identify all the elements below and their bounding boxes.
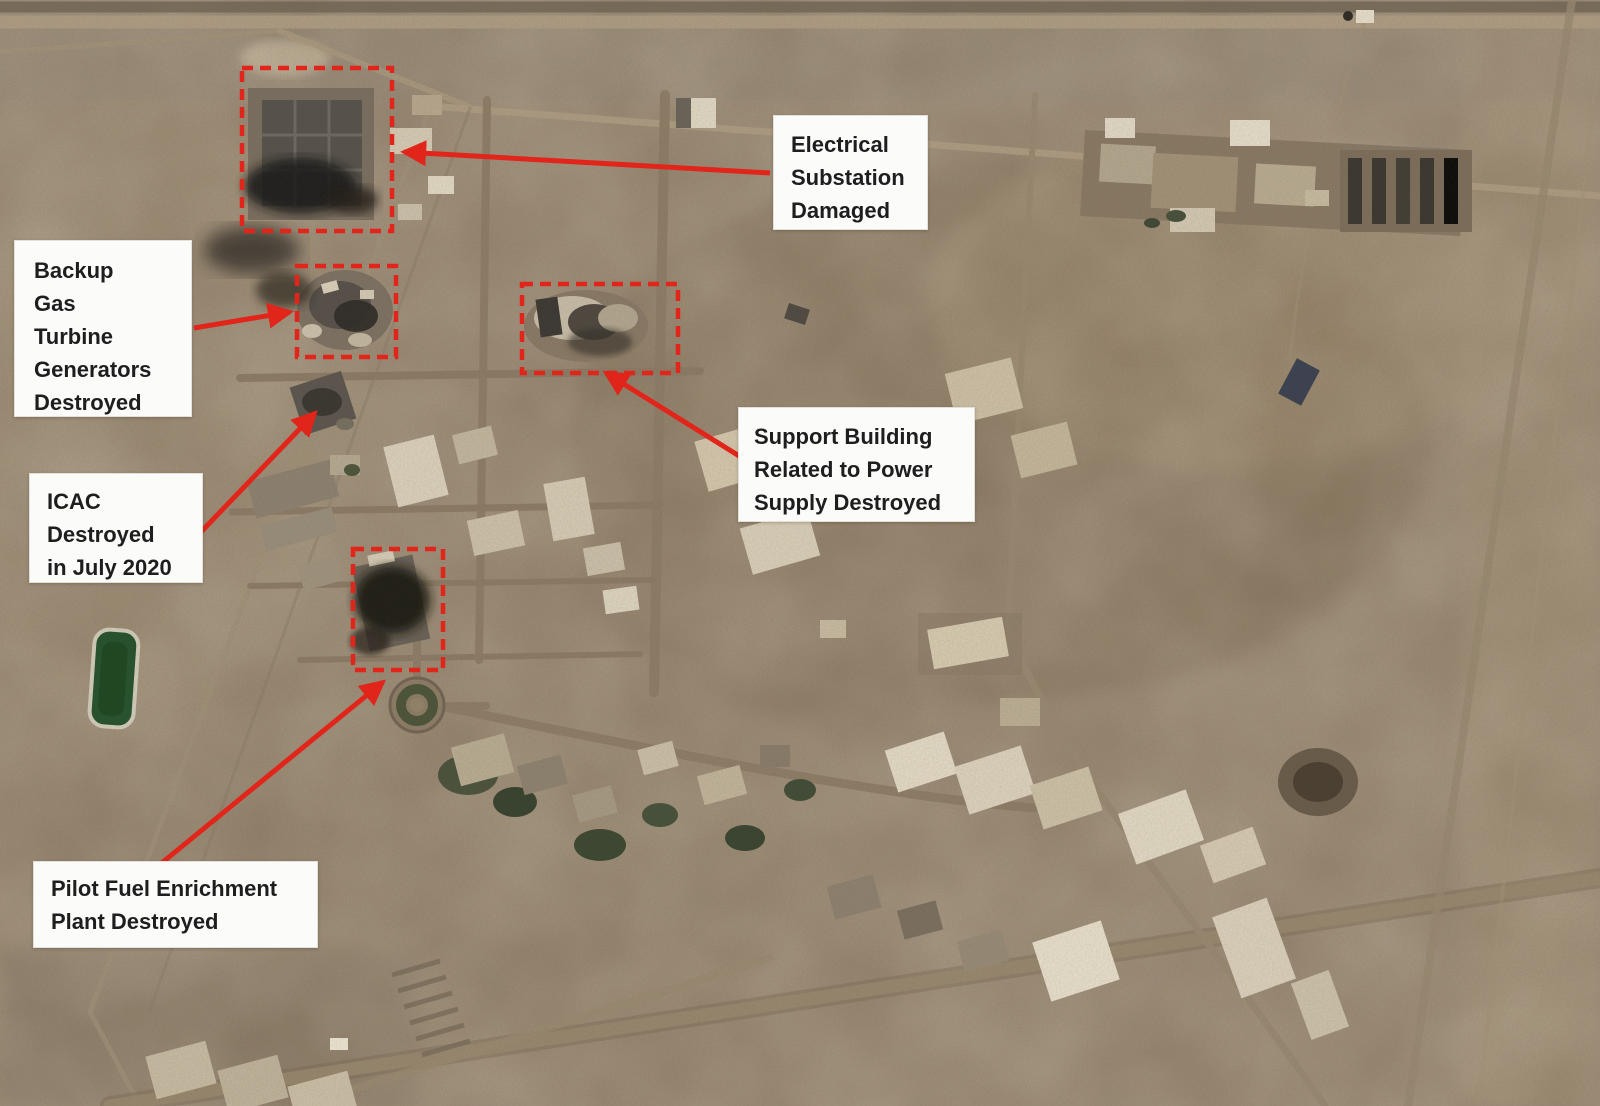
label-support-building: Support Building Related to Power Supply… (738, 407, 975, 522)
annotated-satellite-image: Electrical Substation Damaged Backup Gas… (0, 0, 1600, 1106)
label-electrical-substation: Electrical Substation Damaged (773, 115, 928, 230)
label-gas-turbine: Backup Gas Turbine Generators Destroyed (14, 240, 192, 417)
label-icac: ICAC Destroyed in July 2020 (29, 473, 203, 583)
label-pilot-fuel-plant: Pilot Fuel Enrichment Plant Destroyed (33, 861, 318, 948)
